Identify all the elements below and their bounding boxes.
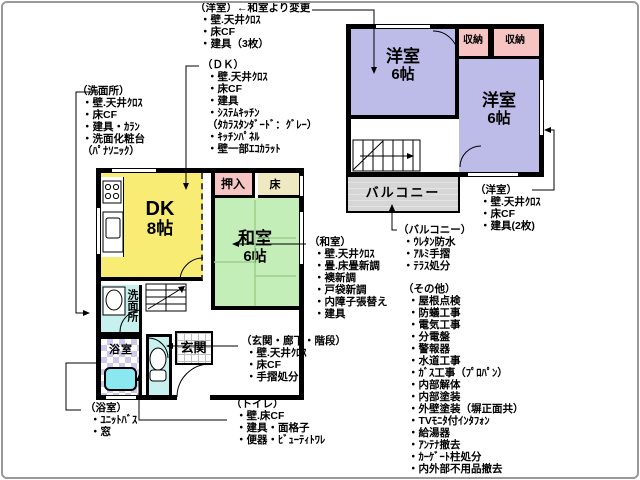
annotation-line: ・内部解体: [408, 379, 524, 391]
annotation-line: ・壁.天井ｸﾛｽ: [207, 71, 317, 83]
annotation-line: ・ｶｰｹﾞｰﾄ柱処分: [408, 451, 524, 463]
oshiire-label: 押入: [211, 178, 255, 191]
closet-left-label: 収納: [459, 35, 487, 46]
annotation-line: ・壁.天井ｸﾛｽ: [246, 347, 346, 359]
annotation-yokushitsu: （浴室）・ﾕﾆｯﾄﾊﾞｽ・窓: [85, 402, 137, 438]
annotation-line: ・内部塗装: [408, 391, 524, 403]
room-toilet: [146, 334, 172, 395]
annotation-line: （洗面所）: [77, 85, 145, 97]
room-name: 洋室: [459, 92, 539, 111]
annotation-toilet: （トイレ）・壁.床CF・建具・面格子・便器・ﾋﾞｭｰﾃｨﾄﾜﾚ: [231, 398, 325, 446]
annotation-washitsu: （和室）・壁.天井ｸﾛｽ・畳.床畳新調・襖新調・戸袋新調・内障子張替え・建具: [309, 236, 388, 320]
window: [96, 208, 101, 254]
annotation-line: ・建具(2枚): [480, 220, 541, 232]
annotation-line: （ＤＫ）: [202, 59, 317, 71]
annotation-line: ・建具・ｶﾗﾝ: [82, 121, 145, 133]
annotation-line: ・襖新調: [314, 272, 388, 284]
entrance-opening: [177, 395, 210, 400]
annotation-senmenjo: （洗面所）・壁.天井ｸﾛｽ・床CF・建具・ｶﾗﾝ・洗面化粧台（ﾊﾟﾅｿﾆｯｸ）: [77, 85, 145, 157]
annotation-line: ・建具・面格子: [236, 422, 325, 434]
annotation-line: ・屋根点検: [408, 295, 524, 307]
annotation-line: （その他）: [403, 283, 524, 295]
senmenjo-label: 洗面所: [124, 289, 138, 322]
annotation-line: ・壁.天井ｸﾛｽ: [82, 97, 145, 109]
window: [299, 176, 304, 196]
annotation-line: （ﾀｶﾗｽﾀﾝﾀﾞｰﾄﾞ：ｸﾞﾚｰ）: [207, 119, 317, 131]
annotation-balcony: （バルコニー）・ｳﾚﾀﾝ防水・ｱﾙﾐ手摺・ﾃﾗｽ処分: [398, 224, 471, 272]
room-size: 8帖: [120, 220, 200, 239]
window: [468, 172, 518, 177]
annotation-line: ・床CF: [207, 83, 317, 95]
annotation-line: ・ｶﾞｽ工事（ﾌﾟﾛﾊﾟﾝ）: [408, 367, 524, 379]
room-size: 6帖: [211, 249, 299, 266]
annotation-line: （洋室）: [475, 184, 541, 196]
window: [376, 24, 430, 29]
annotation-yoshitsu-2f: （洋室）・壁.天井ｸﾛｽ・床CF・建具(2枚): [475, 184, 541, 232]
room-label-western-right: 洋室 6帖: [459, 92, 539, 127]
annotation-line: ・ﾕﾆｯﾄﾊﾞｽ: [90, 414, 137, 426]
annotation-line: ・水道工事: [408, 355, 524, 367]
room-size: 6帖: [459, 111, 539, 128]
annotation-line: ・畳.床畳新調: [314, 260, 388, 272]
room-size: 6帖: [351, 67, 455, 84]
stair-hall-2f: [351, 119, 455, 172]
annotation-dk: （ＤＫ）・壁.天井ｸﾛｽ・床CF・建具・ｼｽﾃﾑｷｯﾁﾝ（ﾀｶﾗｽﾀﾝﾀﾞｰﾄﾞ…: [202, 59, 317, 155]
stairs-1f-area: [146, 284, 186, 311]
annotation-line: ・警報器: [408, 343, 524, 355]
annotation-line: ・洗面化粧台: [82, 133, 145, 145]
bathtub: [104, 367, 137, 391]
annotation-line: ・床CF: [82, 109, 145, 121]
room-name: DK: [120, 198, 200, 220]
window: [106, 395, 136, 400]
room-label-washitsu: 和室 6帖: [211, 230, 299, 265]
annotation-yoshitsu-changed: （洋室）←和室より変更・壁.天井ｸﾛｽ・床CF・建具（3枚）: [195, 2, 310, 50]
annotation-line: ・便器・ﾋﾞｭｰﾃｨﾄﾜﾚ: [236, 434, 325, 446]
annotation-line: ・手摺処分: [246, 371, 346, 383]
annotation-line: （浴室）: [85, 402, 137, 414]
annotation-line: ・ｼｽﾃﾑｷｯﾁﾝ: [207, 107, 317, 119]
annotation-line: ・建具: [314, 308, 388, 320]
window: [539, 80, 544, 135]
annotation-line: （ﾊﾟﾅｿﾆｯｸ）: [82, 145, 145, 157]
annotation-line: ・外壁塗装（塀正面共）: [408, 403, 524, 415]
annotation-line: ・壁.天井ｸﾛｽ: [480, 196, 541, 208]
annotation-line: ・ｳﾚﾀﾝ防水: [403, 236, 471, 248]
tokonoma-label: 床: [254, 179, 296, 191]
balcony-label: バルコニー: [346, 186, 460, 200]
annotation-line: ・建具: [207, 95, 317, 107]
room-name: 洋室: [351, 48, 455, 67]
annotation-line: ・ｱﾙﾐ手摺: [403, 248, 471, 260]
annotation-genkan-hall: （玄関・廊下・階段）・壁.天井ｸﾛｽ・床CF・手摺処分: [241, 335, 346, 383]
annotation-line: ・床CF: [246, 359, 346, 371]
annotation-line: ・壁.床CF: [236, 410, 325, 422]
annotation-line: ・内外部不用品撤去: [408, 463, 524, 475]
annotation-other: （その他）・屋根点検・防蟻工事・電気工事・分電盤・警報器・水道工事・ｶﾞｽ工事（…: [403, 283, 524, 475]
annotation-line: （洋室）←和室より変更: [195, 2, 310, 14]
floorplan-document: 洋室 6帖 洋室 6帖 収納 収納 バルコニー DK 8帖 押入 床 和室 6帖…: [0, 0, 640, 480]
annotation-line: ・給湯器: [408, 427, 524, 439]
annotation-line: ・分電盤: [408, 331, 524, 343]
annotation-line: ・建具（3枚）: [200, 38, 310, 50]
annotation-line: ・床CF: [200, 26, 310, 38]
annotation-line: ・戸袋新調: [314, 284, 388, 296]
annotation-line: ・電気工事: [408, 319, 524, 331]
annotation-line: （玄関・廊下・階段）: [241, 335, 346, 347]
annotation-line: ・壁.天井ｸﾛｽ: [200, 14, 310, 26]
genkan-label: 玄関: [175, 341, 212, 355]
annotation-line: ・壁一部ｴｺｶﾗｯﾄ: [207, 143, 317, 155]
annotation-line: ・ｷｯﾁﾝﾊﾟﾈﾙ: [207, 131, 317, 143]
closet-right-label: 収納: [492, 35, 538, 46]
room-label-western-left: 洋室 6帖: [351, 48, 455, 83]
annotation-line: ・防蟻工事: [408, 307, 524, 319]
annotation-line: ・内障子張替え: [314, 296, 388, 308]
window: [112, 168, 156, 173]
annotation-line: ・ﾃﾗｽ処分: [403, 260, 471, 272]
yokushitsu-label: 浴室: [102, 344, 140, 356]
window: [299, 212, 304, 264]
annotation-line: ・壁.天井ｸﾛｽ: [314, 248, 388, 260]
annotation-line: ・床CF: [480, 208, 541, 220]
room-label-dk: DK 8帖: [120, 198, 200, 239]
annotation-line: ・ｱﾝﾃﾅ撤去: [408, 439, 524, 451]
annotation-line: （和室）: [309, 236, 388, 248]
annotation-line: ・TVﾓﾆﾀ付ｲﾝﾀﾌｫﾝ: [408, 415, 524, 427]
annotation-line: （トイレ）: [231, 398, 325, 410]
room-name: 和室: [211, 230, 299, 249]
annotation-line: ・窓: [90, 426, 137, 438]
annotation-line: （バルコニー）: [398, 224, 471, 236]
